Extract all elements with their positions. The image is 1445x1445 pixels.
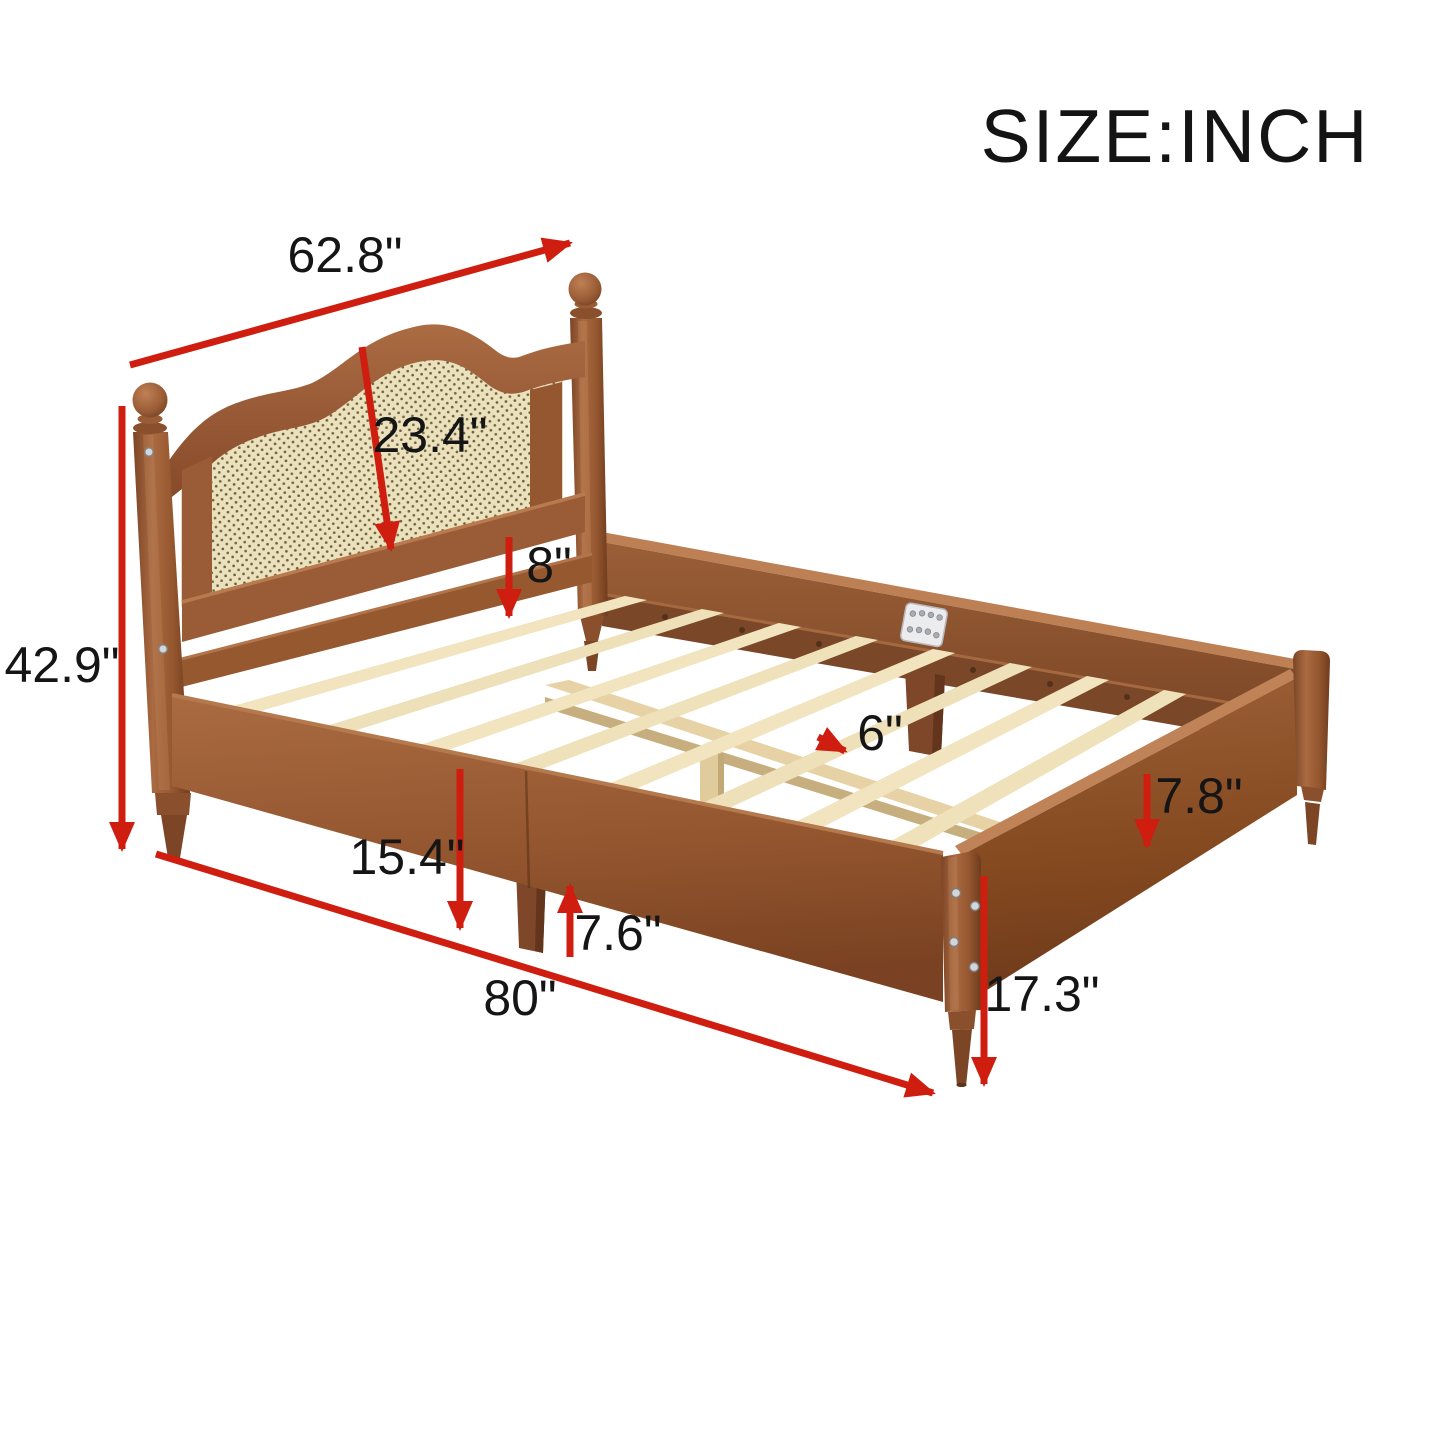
- dim-headboard-total-height: 42.9": [4, 406, 122, 849]
- page-title: SIZE:INCH: [981, 94, 1370, 178]
- post-screw: [971, 902, 980, 911]
- dimension-label: 17.3": [984, 966, 1099, 1022]
- dimension-label: 7.6": [574, 905, 661, 961]
- bed-illustration: [133, 273, 1331, 1088]
- post-foot: [161, 815, 187, 858]
- panel-left-stile: [182, 456, 212, 604]
- dimension-label: 80": [483, 970, 556, 1026]
- post-foot: [1305, 802, 1320, 845]
- post-screw: [970, 963, 979, 972]
- post-foot-neck: [155, 793, 191, 815]
- far-corner-post: [1293, 650, 1330, 845]
- dimension-label: 62.8": [287, 227, 402, 283]
- finial-ball: [133, 383, 168, 418]
- post-screw: [952, 889, 961, 898]
- post-foot: [952, 1029, 972, 1086]
- finial-ball: [569, 273, 602, 306]
- dimension-label: 7.8": [1155, 768, 1242, 824]
- post-screw: [950, 938, 959, 947]
- headboard: [162, 324, 592, 692]
- post-screw: [145, 448, 153, 456]
- bed-dimension-diagram-page: 62.8" 23.4" 8" 42.9" 15.4" 7.6" 80": [0, 0, 1445, 1445]
- post-foot-neck: [580, 616, 604, 641]
- dimension-label: 6": [857, 705, 903, 761]
- dimension-label: 42.9": [4, 637, 119, 693]
- metal-bracket: [900, 602, 948, 647]
- post-foot-neck: [948, 1010, 976, 1030]
- far-side-rail: [602, 532, 1295, 746]
- post-foot-tip: [957, 1083, 967, 1087]
- dim-headboard-width: 62.8": [130, 227, 570, 365]
- bed-dimension-diagram: 62.8" 23.4" 8" 42.9" 15.4" 7.6" 80": [0, 0, 1445, 1445]
- post-screw: [159, 645, 167, 653]
- dimension-label: 8": [526, 537, 572, 593]
- dimension-label: 23.4": [372, 407, 487, 463]
- finial-ring: [570, 307, 602, 319]
- dimension-label: 15.4": [349, 829, 464, 885]
- front-corner-post: [941, 852, 981, 1087]
